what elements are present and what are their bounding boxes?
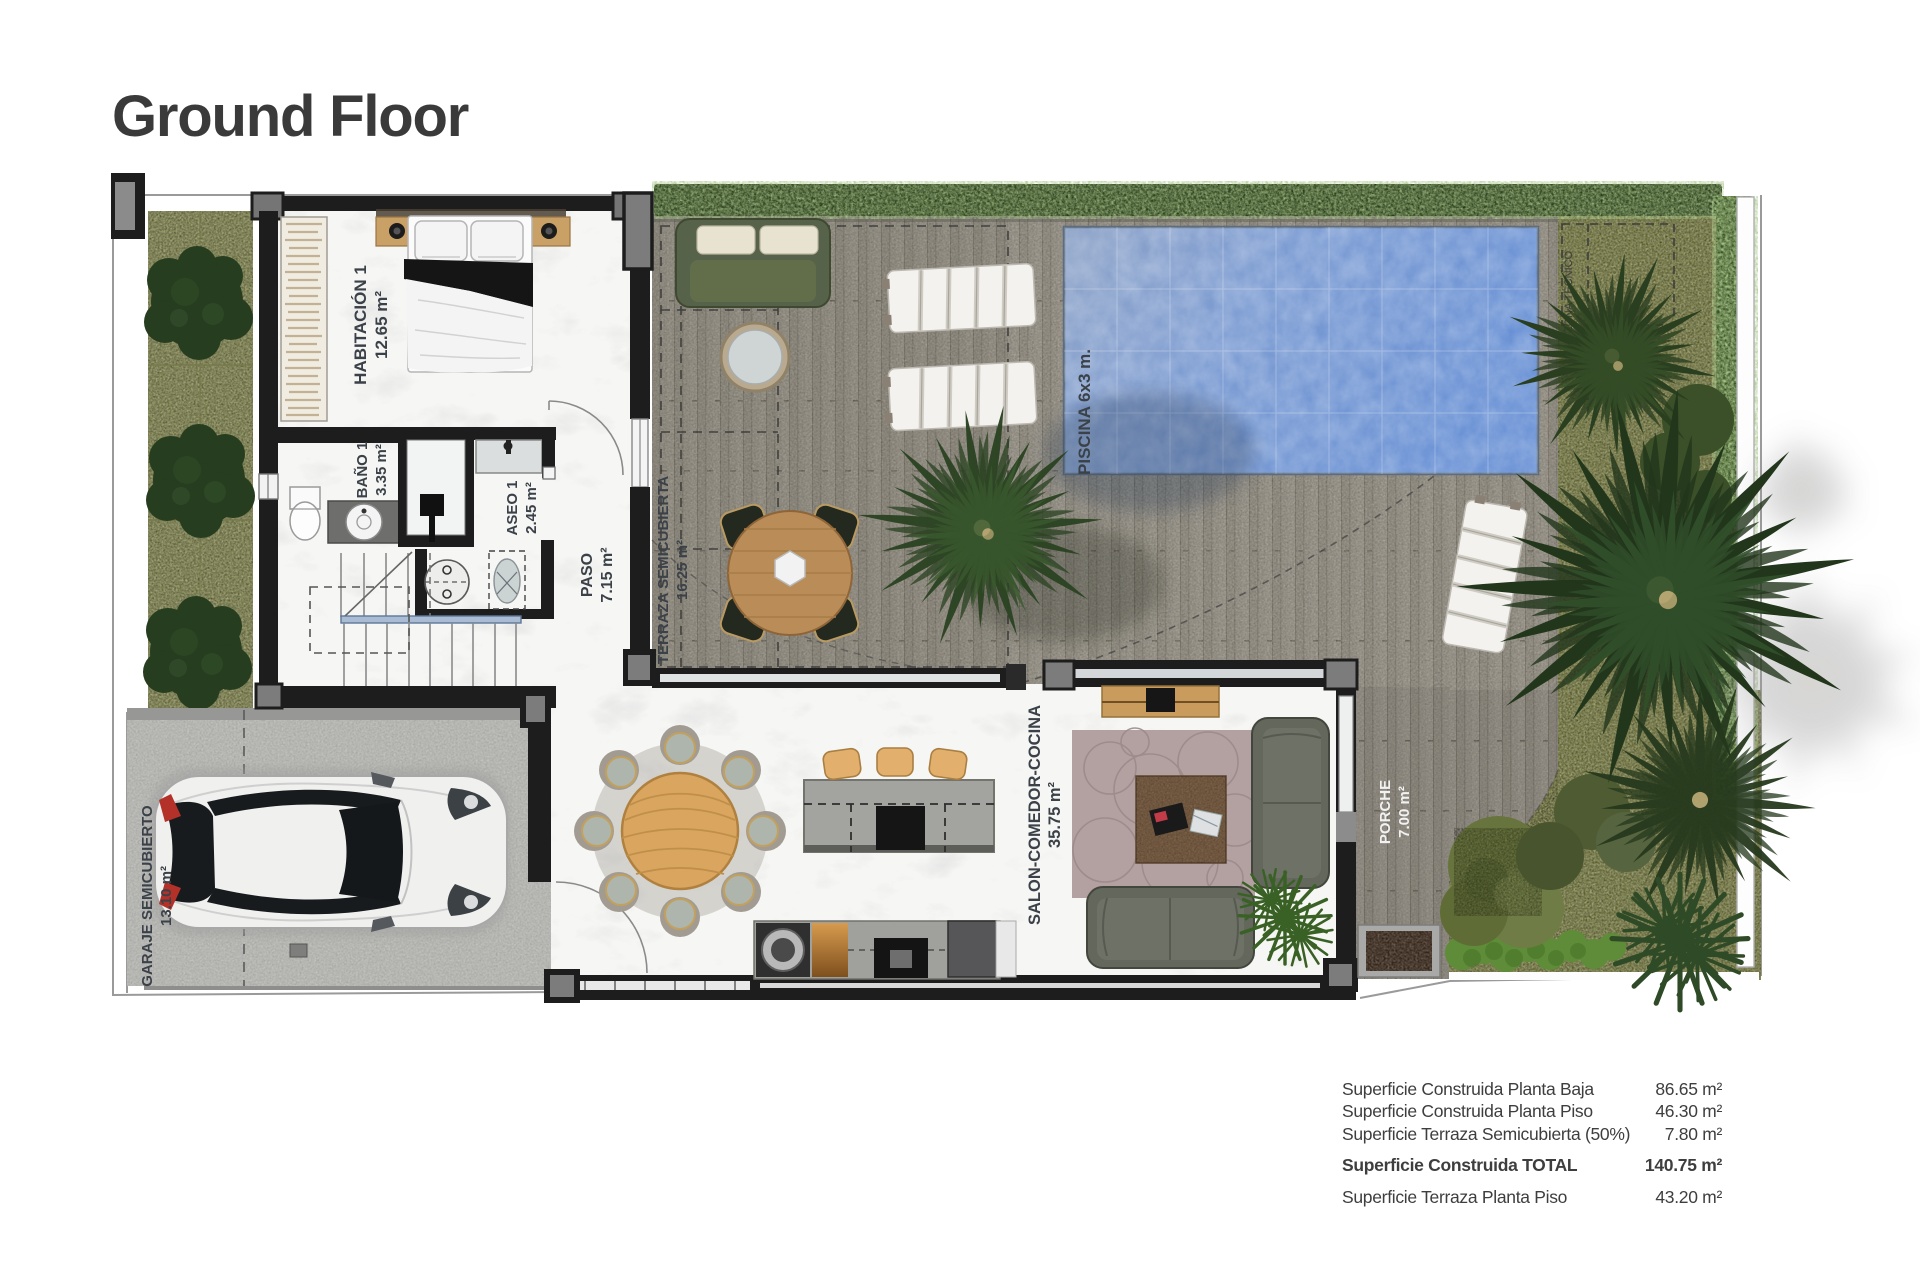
svg-text:140.75 m²: 140.75 m² bbox=[1645, 1155, 1723, 1175]
svg-text:Superficie Terraza Planta Piso: Superficie Terraza Planta Piso bbox=[1342, 1187, 1567, 1207]
svg-text:Superficie Terraza Semicubiert: Superficie Terraza Semicubierta (50%) bbox=[1342, 1124, 1630, 1144]
svg-text:Ground Floor: Ground Floor bbox=[112, 84, 469, 149]
svg-text:7.80 m²: 7.80 m² bbox=[1665, 1124, 1723, 1144]
svg-text:Superficie Construida Planta B: Superficie Construida Planta Baja bbox=[1342, 1079, 1594, 1099]
svg-text:43.20 m²: 43.20 m² bbox=[1655, 1187, 1722, 1207]
svg-text:86.65 m²: 86.65 m² bbox=[1655, 1079, 1722, 1099]
svg-text:Superficie Construida TOTAL: Superficie Construida TOTAL bbox=[1342, 1155, 1578, 1175]
svg-text:Superficie Construida Planta P: Superficie Construida Planta Piso bbox=[1342, 1101, 1593, 1121]
svg-text:PISCINA 6x3 m.: PISCINA 6x3 m. bbox=[1075, 349, 1094, 475]
svg-text:46.30 m²: 46.30 m² bbox=[1655, 1101, 1722, 1121]
